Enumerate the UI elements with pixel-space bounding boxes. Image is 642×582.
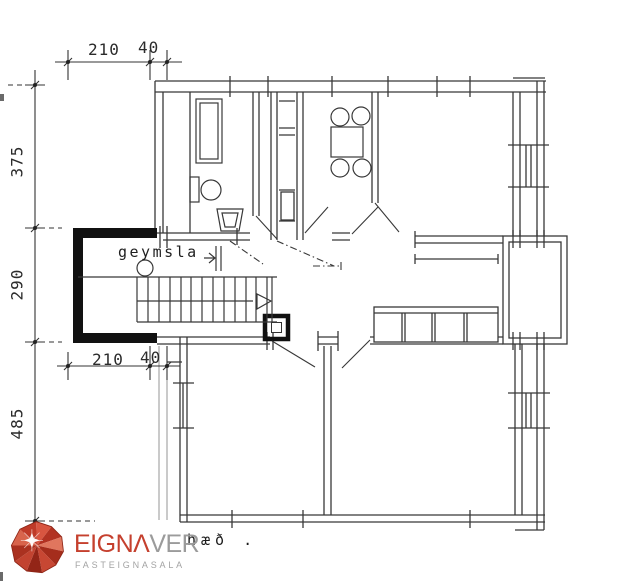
storage-door-symbol bbox=[204, 246, 221, 271]
floor-plan-drawing bbox=[0, 0, 642, 582]
wardrobe bbox=[374, 307, 498, 342]
dim-left-375: 375 bbox=[8, 138, 27, 186]
dim-left-485: 485 bbox=[8, 400, 27, 448]
dining-table bbox=[331, 107, 371, 177]
dim-left-290: 290 bbox=[8, 261, 27, 309]
dimension-lines bbox=[8, 50, 182, 525]
sink-icon bbox=[190, 177, 221, 202]
logo-text-primary: EIGNΛ bbox=[74, 530, 149, 558]
logo-gem-icon bbox=[8, 516, 66, 580]
chimney bbox=[265, 316, 288, 339]
logo-textblock: EIGNΛVER FASTEIGNASALA bbox=[74, 532, 199, 570]
dim-mid-210: 210 bbox=[92, 350, 124, 369]
room-label-geymsla: geymsla bbox=[118, 243, 199, 261]
dim-mid-40: 40 bbox=[140, 348, 161, 367]
bathtub-icon bbox=[196, 99, 222, 163]
bay-window bbox=[503, 230, 567, 350]
scan-artifacts bbox=[0, 94, 4, 581]
toilet-icon bbox=[217, 209, 243, 231]
logo: EIGNΛVER FASTEIGNASALA bbox=[8, 516, 199, 580]
dim-top-40: 40 bbox=[138, 38, 159, 57]
logo-wordmark: EIGNΛVER bbox=[74, 532, 199, 557]
dim-top-210: 210 bbox=[88, 40, 120, 59]
door-swings bbox=[230, 203, 399, 368]
floorplan-page: 210 40 375 290 485 210 40 geymsla hæð . bbox=[0, 0, 642, 582]
logo-text-secondary: VER bbox=[149, 530, 199, 558]
logo-tagline: FASTEIGNASALA bbox=[74, 560, 199, 570]
projection-lines bbox=[159, 346, 167, 520]
newel-post bbox=[137, 260, 153, 276]
stairs bbox=[78, 260, 277, 322]
walls bbox=[155, 76, 550, 530]
stairs-direction-arrow bbox=[257, 294, 271, 309]
